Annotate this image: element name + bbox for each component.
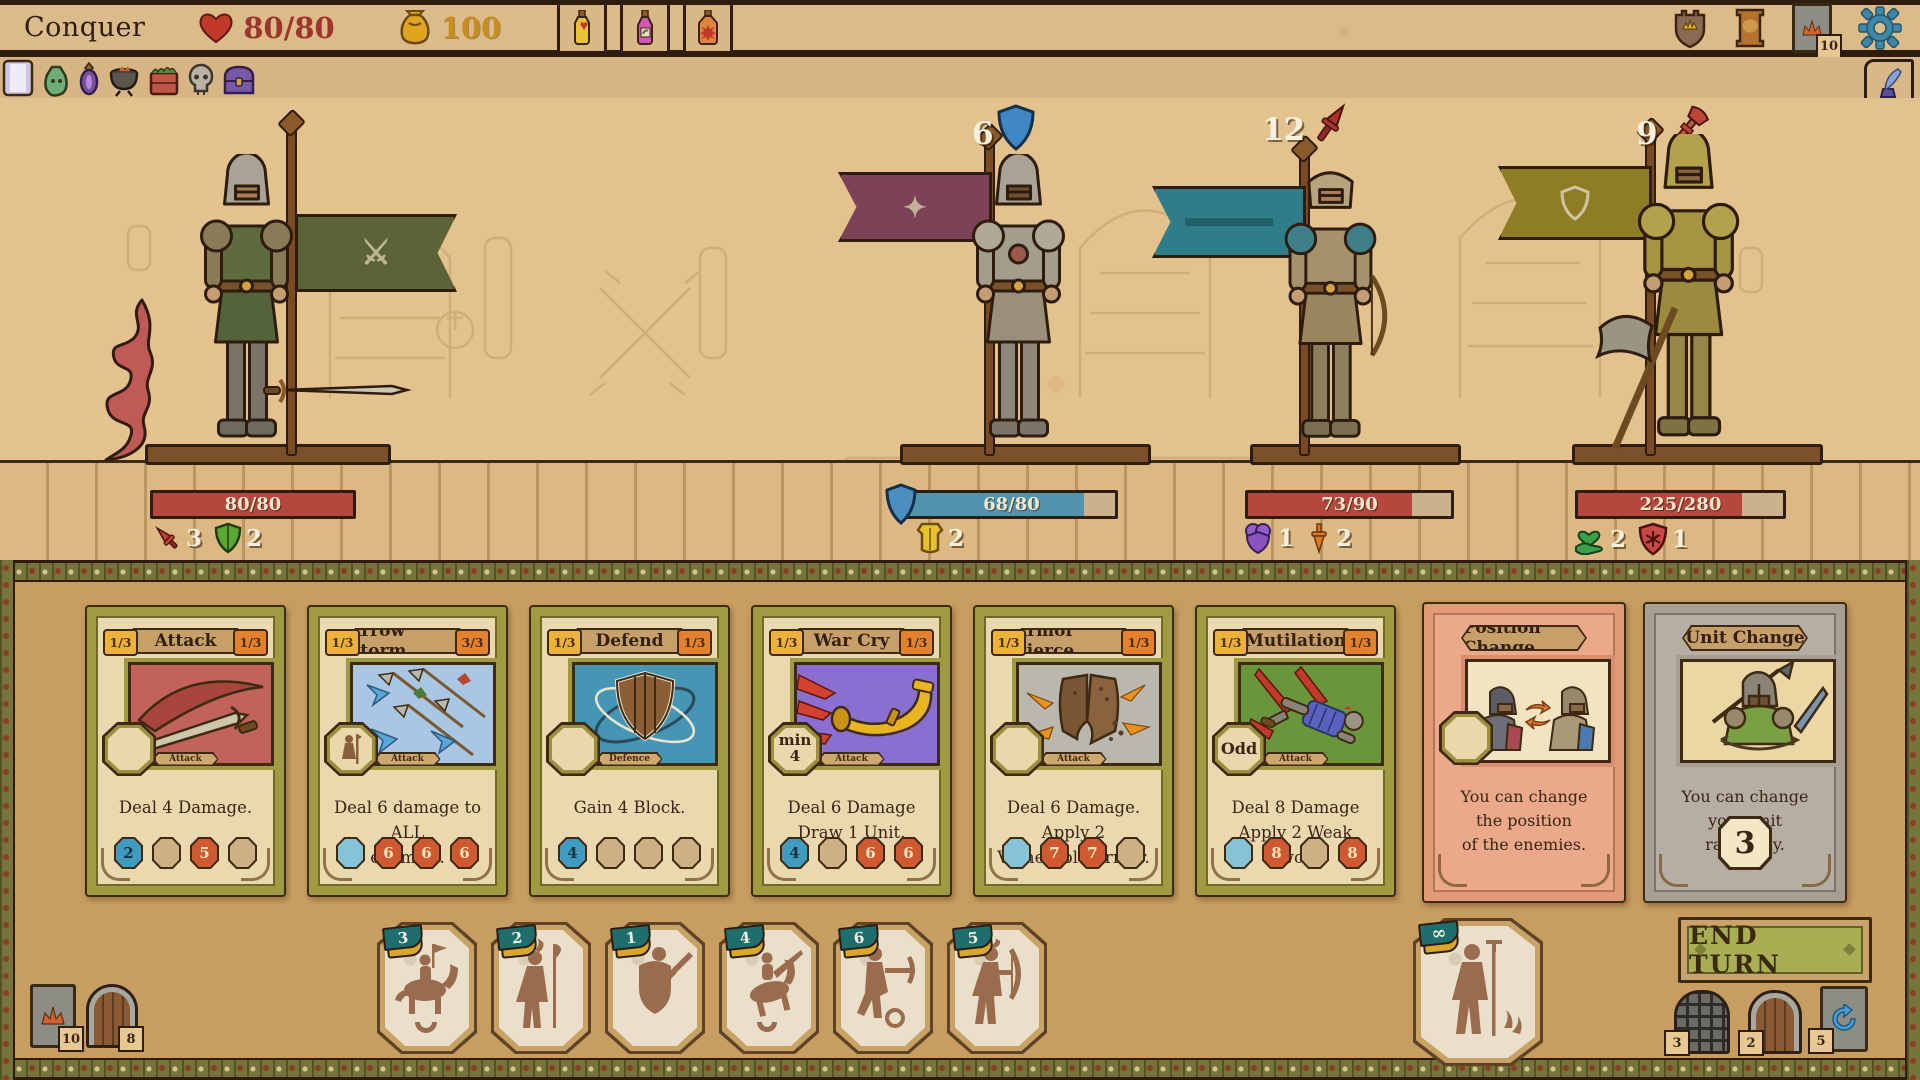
card-charges-badge: 1/3	[1343, 629, 1378, 656]
token-crossbowman[interactable]: 6	[833, 922, 933, 1054]
shield-emblem	[1560, 185, 1590, 221]
utility-bar	[0, 57, 1920, 102]
knight-figure	[1262, 158, 1397, 454]
card-type-banner: Attack	[1263, 752, 1329, 766]
hp-bar-unit2: 68/80	[905, 490, 1118, 519]
battle-area: ⚔	[0, 98, 1920, 560]
card-uses-badge: 1/3	[991, 629, 1026, 656]
card-type-banner: Attack	[153, 752, 219, 766]
card-title-bar: Position Change	[1461, 625, 1587, 651]
loot-bag-icon[interactable]	[41, 61, 71, 97]
magic-potion-slot[interactable]	[620, 2, 670, 54]
player-hp: 80/80	[197, 11, 334, 45]
hp-bar-unit4: 225/280	[1575, 490, 1786, 519]
card-charges-badge: 1/3	[677, 629, 712, 656]
status-row-unit2: 2	[916, 522, 972, 554]
shield-blue-icon	[996, 104, 1036, 152]
ornate-border-right	[1905, 560, 1920, 1080]
corner-flourish	[101, 848, 130, 881]
ornate-border-bottom	[0, 1058, 1920, 1080]
corner-flourish	[989, 848, 1018, 881]
dagger-red-icon	[1307, 100, 1353, 150]
end-turn-button[interactable]: END TURN	[1678, 917, 1872, 983]
door-pile[interactable]: 2	[1748, 990, 1802, 1054]
dagger-orange-icon	[1306, 522, 1332, 554]
card-title-bar: Mutilation	[1234, 628, 1357, 654]
map-scroll-icon[interactable]	[1734, 7, 1766, 49]
hp-bar-unit1: 80/80	[150, 490, 356, 519]
card-description: Gain 4 Block.	[552, 796, 707, 821]
corner-flourish	[545, 848, 574, 881]
magic-potion-icon	[633, 10, 657, 46]
top-bar-right: 10	[1672, 5, 1902, 50]
card-charges-badge: 1/3	[899, 629, 934, 656]
card-slot	[546, 722, 600, 776]
door-count: 2	[1738, 1030, 1764, 1056]
card-charges-badge: 3/3	[455, 629, 490, 656]
game-screen: Conquer 80/80 100	[0, 0, 1920, 1080]
card-title-bar: Armor Pierce	[1012, 628, 1135, 654]
corner-flourish	[1351, 848, 1380, 881]
card-title-bar: Unit Change	[1682, 625, 1808, 651]
quill-ink-icon	[1874, 67, 1904, 99]
card-arrow-storm[interactable]: 1/3 3/3 Arrow Storm Attack Deal 6 damage…	[307, 605, 508, 897]
settings-gear-icon[interactable]	[1858, 6, 1902, 50]
crossed-swords-emblem: ⚔	[361, 233, 391, 273]
block-badge: 12	[1262, 100, 1353, 150]
redraw-count: 5	[1808, 1028, 1834, 1054]
token-peasant[interactable]: ∞	[1413, 918, 1543, 1066]
card-armor-pierce[interactable]: 1/3 1/3 Armor Pierce Attack Deal 6 Damag…	[973, 605, 1174, 897]
corner-flourish	[1659, 854, 1688, 887]
explosive-potion-slot[interactable]	[683, 2, 733, 54]
sword-weapon	[262, 376, 412, 406]
explosive-potion-icon	[695, 10, 721, 46]
token-archer[interactable]: 5	[947, 922, 1047, 1054]
card-type-banner: Defence	[597, 752, 663, 766]
player-gold-value: 100	[441, 11, 502, 45]
gate-pile[interactable]: 3	[1674, 990, 1730, 1054]
unit-change-counter: 3	[1718, 816, 1772, 870]
card-position-change[interactable]: Position Change You can change the posit…	[1422, 602, 1626, 903]
corner-flourish	[463, 848, 492, 881]
corner-flourish	[1211, 848, 1240, 881]
flame-icon	[84, 298, 164, 463]
card-war-cry[interactable]: 1/3 1/3 War Cry Attack min 4 Deal 6 Dama…	[751, 605, 952, 897]
stripe-emblem	[1185, 218, 1274, 226]
unit1-flag: ⚔	[295, 214, 457, 292]
token-swordsman[interactable]: 1	[605, 922, 705, 1054]
supply-crate-icon[interactable]	[148, 63, 180, 97]
card-art-unit-swap	[1680, 659, 1836, 763]
shield-blue-icon	[884, 483, 918, 525]
card-slot	[990, 722, 1044, 776]
corner-flourish	[241, 848, 270, 881]
card-title-bar: Arrow Storm	[346, 628, 469, 654]
amulet-icon[interactable]	[78, 61, 100, 97]
corner-flourish	[767, 848, 796, 881]
card-slot	[102, 722, 156, 776]
token-cavalry[interactable]: 3	[377, 922, 477, 1054]
status-row-unit4: 2 1	[1572, 522, 1696, 556]
ornate-border-top	[0, 560, 1920, 582]
token-halberdier[interactable]: 2	[491, 922, 591, 1054]
card-charges-badge: 1/3	[1121, 629, 1156, 656]
card-slot-min4: min 4	[768, 722, 822, 776]
journal-icon[interactable]	[2, 59, 34, 97]
status-row-unit3: 1 2	[1242, 522, 1360, 554]
corner-flourish	[323, 848, 352, 881]
shield-purple-icon	[1242, 522, 1274, 554]
ornate-border-left	[0, 560, 15, 1080]
health-potion-icon	[570, 10, 594, 46]
card-uses-badge: 1/3	[103, 629, 138, 656]
corner-flourish	[907, 848, 936, 881]
kingdom-shield-icon[interactable]	[1672, 7, 1708, 49]
redraw-button[interactable]: 5	[1820, 986, 1868, 1052]
discard-count: 8	[118, 1026, 144, 1052]
card-description: You can change the position of the enemi…	[1445, 785, 1603, 857]
card-type-banner: Attack	[819, 752, 885, 766]
hand-area: 1/3 1/3 Attack Attack Deal 4 Damage. 2 5	[0, 560, 1920, 1080]
card-description: Deal 4 Damage.	[108, 796, 263, 821]
card-title-bar: War Cry	[790, 628, 913, 654]
armor-yellow-icon	[916, 522, 944, 554]
player-hp-value: 80/80	[243, 11, 334, 45]
status-row-unit1: 3 2	[152, 522, 270, 554]
card-uses-badge: 1/3	[547, 629, 582, 656]
player-gold: 100	[397, 9, 502, 47]
page-title: Conquer	[24, 12, 145, 43]
axe-weapon	[1580, 298, 1700, 458]
skull-icon[interactable]	[187, 63, 215, 97]
card-attack[interactable]: 1/3 1/3 Attack Attack Deal 4 Damage. 2 5	[85, 605, 286, 897]
card-uses-badge: 1/3	[1213, 629, 1248, 656]
shield-red-star-icon	[1638, 522, 1668, 556]
card-type-banner: Attack	[375, 752, 441, 766]
card-unit-change[interactable]: Unit Change You can change your unit ran…	[1643, 602, 1847, 903]
card-title-bar: Defend	[568, 628, 691, 654]
potion-belt	[557, 2, 733, 54]
token-lancer[interactable]: 4	[719, 922, 819, 1054]
gate-count: 3	[1664, 1030, 1690, 1056]
card-type-banner: Attack	[1041, 752, 1107, 766]
top-bar: Conquer 80/80 100	[0, 0, 1920, 57]
draw-pile[interactable]: 10	[30, 984, 76, 1048]
discard-door[interactable]: 8	[86, 984, 138, 1048]
heart-icon	[197, 11, 235, 45]
hand-heart-green-icon	[1572, 523, 1606, 555]
health-potion-slot[interactable]	[557, 2, 607, 54]
corner-flourish	[685, 848, 714, 881]
card-charges-badge: 1/3	[233, 629, 268, 656]
corner-flourish	[1438, 854, 1467, 887]
card-slot-odd: Odd	[1212, 722, 1266, 776]
corner-flourish	[1129, 848, 1158, 881]
star-emblem: ✦	[903, 191, 926, 224]
deck-counter[interactable]: 10	[1792, 3, 1832, 53]
draw-pile-count: 10	[58, 1026, 84, 1052]
card-slot-unit	[324, 722, 378, 776]
card-slot	[1439, 711, 1493, 765]
corner-flourish	[1802, 854, 1831, 887]
block-badge: 6	[972, 104, 1036, 152]
gold-pouch-icon	[397, 9, 433, 47]
card-uses-badge: 1/3	[325, 629, 360, 656]
unit-silhouette-icon	[338, 732, 364, 766]
card-mutilation[interactable]: 1/3 1/3 Mutilation Attack Odd Deal 8 Dam…	[1195, 605, 1396, 897]
deck-count-badge: 10	[1816, 34, 1842, 59]
sword-red-icon	[152, 523, 182, 553]
knight-figure	[950, 154, 1085, 454]
card-uses-badge: 1/3	[769, 629, 804, 656]
card-title-bar: Attack	[124, 628, 247, 654]
top-bar-strip: Conquer 80/80 100	[0, 5, 1920, 50]
hp-bar-unit3: 73/90	[1245, 490, 1454, 519]
corner-flourish	[1581, 854, 1610, 887]
cauldron-icon[interactable]	[107, 61, 141, 97]
shield-green-icon	[214, 522, 242, 554]
treasure-chest-icon[interactable]	[222, 63, 256, 97]
knight-figure	[178, 154, 313, 454]
card-defend[interactable]: 1/3 1/3 Defend Defence Gain 4 Block. 4	[529, 605, 730, 897]
